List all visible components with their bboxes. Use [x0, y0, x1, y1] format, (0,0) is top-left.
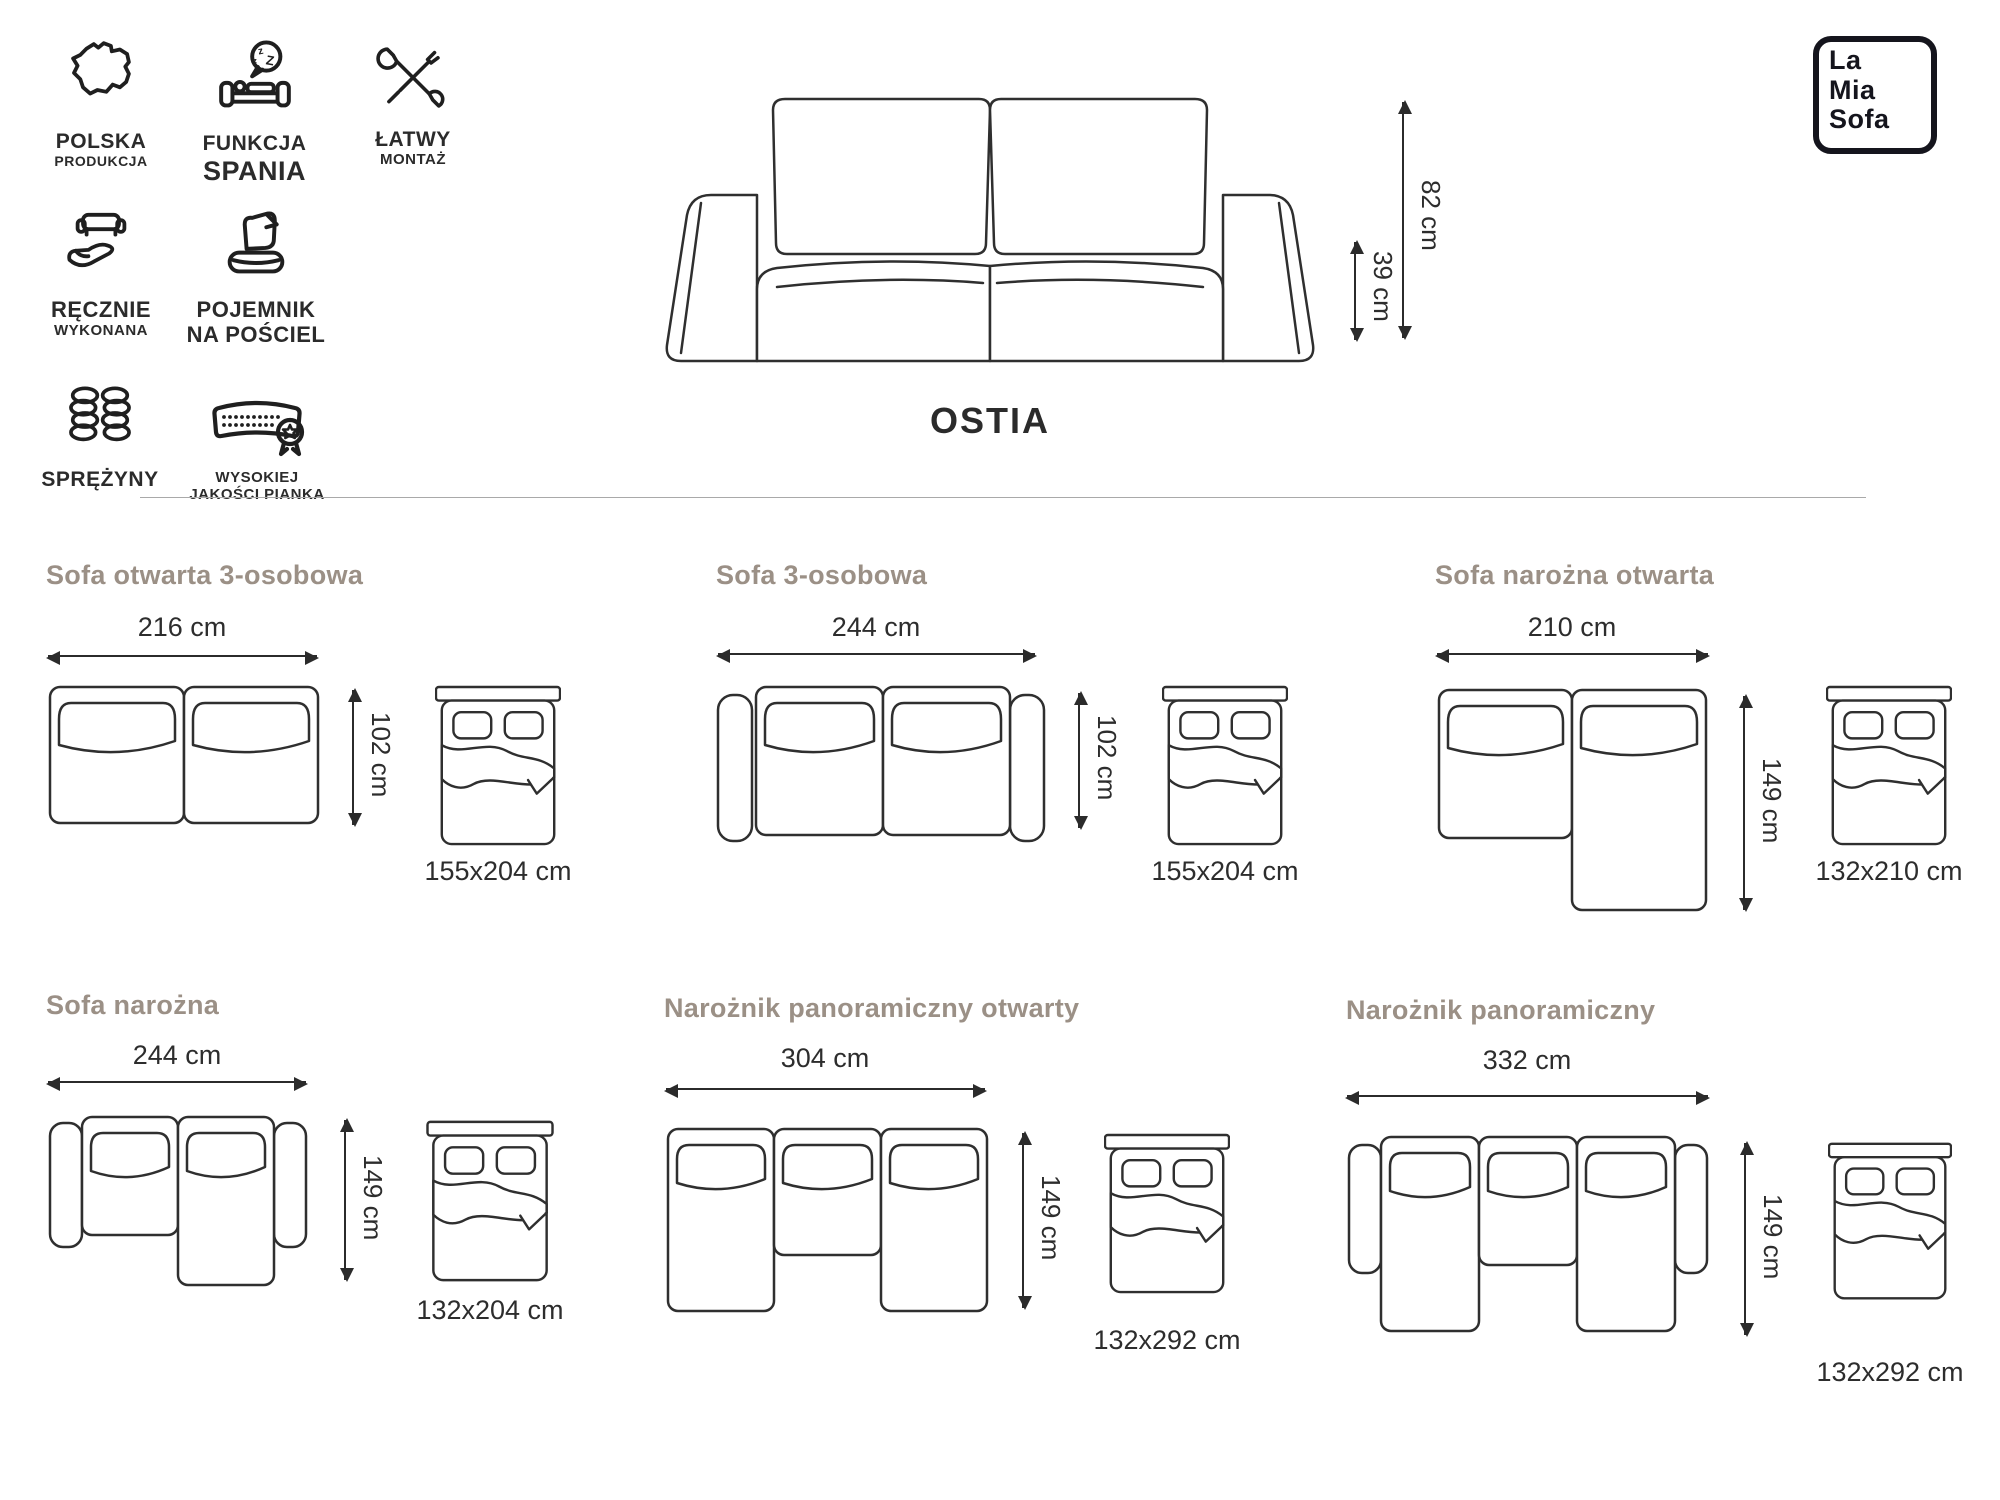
poland-map-icon — [56, 36, 146, 126]
section-title: Sofa otwarta 3-osobowa — [46, 560, 363, 591]
bed-top-view-icon — [1104, 1131, 1230, 1298]
badge-label: POLSKA — [56, 130, 147, 154]
height-dimension-label: 82 cm — [1417, 180, 1444, 251]
spec-sheet: POLSKA PRODUKCJA z Z z FUNKCJA SPANIA ŁA… — [0, 0, 2000, 1500]
width-dimension-arrow — [48, 655, 317, 657]
bed-size-label: 132x210 cm — [1779, 856, 1999, 887]
badge-sublabel: NA POŚCIEL — [187, 323, 326, 348]
depth-dimension-arrow — [1743, 696, 1745, 910]
width-dimension-arrow — [1347, 1095, 1708, 1097]
sleep-function-icon: z Z z — [208, 34, 302, 128]
easy-assembly-icon — [370, 38, 456, 124]
width-dimension-arrow — [718, 653, 1035, 655]
svg-text:z: z — [257, 46, 264, 58]
bed-top-view-icon — [435, 683, 561, 850]
badge-sprezyny: SPRĘŻYNY — [30, 376, 170, 492]
height-dimension-arrow — [1402, 102, 1404, 338]
seat-height-dimension-arrow — [1354, 242, 1356, 340]
section-title: Sofa narożna otwarta — [1435, 560, 1714, 591]
badge-wysokiej-jakosci-pianka: WYSOKIEJ JAKOŚCI PIANKA — [162, 386, 352, 504]
badge-label: POJEMNIK — [197, 298, 316, 323]
section-title: Sofa 3-osobowa — [716, 560, 927, 591]
badge-label: FUNKCJA — [203, 132, 307, 156]
section-title: Narożnik panoramiczny otwarty — [664, 993, 1079, 1024]
config-section-naroznik-panoramiczny: Narożnik panoramiczny 332 cm 149 cm 132x… — [1328, 985, 1998, 1385]
config-section-sofa-narozna: Sofa narożna 244 cm 149 cm 132x204 cm — [30, 985, 640, 1365]
config-section-naroznik-panoramiczny-otwarty: Narożnik panoramiczny otwarty 304 cm 149… — [648, 985, 1308, 1365]
svg-text:Z: Z — [264, 52, 275, 68]
depth-dimension-label: 149 cm — [359, 1155, 386, 1240]
bed-size-label: 155x204 cm — [388, 856, 608, 887]
sofa-top-view-drawing — [666, 1127, 989, 1313]
sofa-top-view-drawing — [1437, 688, 1708, 912]
badge-polska-produkcja: POLSKA PRODUKCJA — [28, 36, 174, 169]
sofa-front-view-drawing — [645, 75, 1335, 385]
section-title: Sofa narożna — [46, 990, 219, 1021]
width-dimension-arrow — [1437, 653, 1708, 655]
badge-sublabel: SPANIA — [203, 156, 306, 186]
badge-sublabel: WYKONANA — [54, 323, 148, 340]
width-dimension-label: 210 cm — [1472, 612, 1672, 643]
width-dimension-label: 244 cm — [776, 612, 976, 643]
bedding-storage-icon — [209, 200, 303, 294]
config-section-sofa-otwarta-3-osobowa: Sofa otwarta 3-osobowa 216 cm 102 cm 155… — [30, 560, 640, 890]
svg-text:z: z — [253, 56, 257, 65]
width-dimension-label: 332 cm — [1427, 1045, 1627, 1076]
depth-dimension-label: 149 cm — [1759, 1194, 1786, 1279]
sofa-top-view-drawing — [716, 685, 1046, 847]
width-dimension-arrow — [48, 1081, 306, 1083]
handmade-icon — [56, 204, 146, 294]
depth-dimension-arrow — [344, 1120, 346, 1280]
badge-pojemnik-na-posciel: POJEMNIK NA POŚCIEL — [166, 200, 346, 347]
width-dimension-label: 216 cm — [82, 612, 282, 643]
bed-top-view-icon — [426, 1118, 554, 1286]
badge-label: WYSOKIEJ — [215, 470, 298, 487]
bed-size-label: 132x204 cm — [380, 1295, 600, 1326]
sofa-top-view-drawing — [48, 1115, 308, 1287]
section-divider — [140, 497, 1866, 498]
badge-label: SPRĘŻYNY — [41, 468, 158, 492]
bed-size-label: 132x292 cm — [1780, 1357, 2000, 1388]
config-section-sofa-3-osobowa: Sofa 3-osobowa 244 cm 102 cm 155x204 cm — [700, 560, 1340, 890]
badge-label: ŁATWY — [375, 128, 451, 152]
bed-size-label: 155x204 cm — [1115, 856, 1335, 887]
bed-top-view-icon — [1826, 683, 1952, 850]
config-section-sofa-narozna-otwarta: Sofa narożna otwarta 210 cm 149 cm 132x2… — [1420, 560, 1990, 890]
depth-dimension-label: 102 cm — [367, 712, 394, 797]
depth-dimension-label: 149 cm — [1037, 1175, 1064, 1260]
width-dimension-arrow — [666, 1088, 985, 1090]
sofa-top-view-drawing — [48, 685, 320, 825]
badge-sublabel: JAKOŚCI PIANKA — [189, 487, 324, 504]
width-dimension-label: 244 cm — [77, 1040, 277, 1071]
bed-top-view-icon — [1828, 1140, 1952, 1304]
logo-line: La — [1829, 46, 1931, 76]
badge-sublabel: MONTAŻ — [380, 152, 446, 169]
depth-dimension-arrow — [1078, 693, 1080, 828]
logo-line: Sofa — [1829, 105, 1931, 135]
logo-line: Mia — [1829, 76, 1931, 106]
badge-label: RĘCZNIE — [51, 298, 151, 323]
springs-icon — [56, 376, 144, 464]
badge-latwy-montaz: ŁATWY MONTAŻ — [348, 38, 478, 168]
product-name: OSTIA — [840, 400, 1140, 442]
depth-dimension-arrow — [352, 690, 354, 825]
depth-dimension-arrow — [1744, 1143, 1746, 1335]
depth-dimension-label: 102 cm — [1093, 715, 1120, 800]
foam-quality-icon — [192, 386, 322, 466]
badge-funkcja-spania: z Z z FUNKCJA SPANIA — [172, 34, 337, 186]
badge-sublabel: PRODUKCJA — [54, 154, 147, 170]
width-dimension-label: 304 cm — [725, 1043, 925, 1074]
sofa-top-view-drawing — [1347, 1135, 1709, 1335]
bed-top-view-icon — [1162, 683, 1288, 850]
bed-size-label: 132x292 cm — [1057, 1325, 1277, 1356]
brand-logo: La Mia Sofa — [1813, 36, 1937, 154]
seat-height-dimension-label: 39 cm — [1369, 251, 1396, 322]
depth-dimension-arrow — [1022, 1133, 1024, 1308]
section-title: Narożnik panoramiczny — [1346, 995, 1655, 1026]
depth-dimension-label: 149 cm — [1758, 758, 1785, 843]
badge-recznie-wykonana: RĘCZNIE WYKONANA — [28, 204, 174, 339]
